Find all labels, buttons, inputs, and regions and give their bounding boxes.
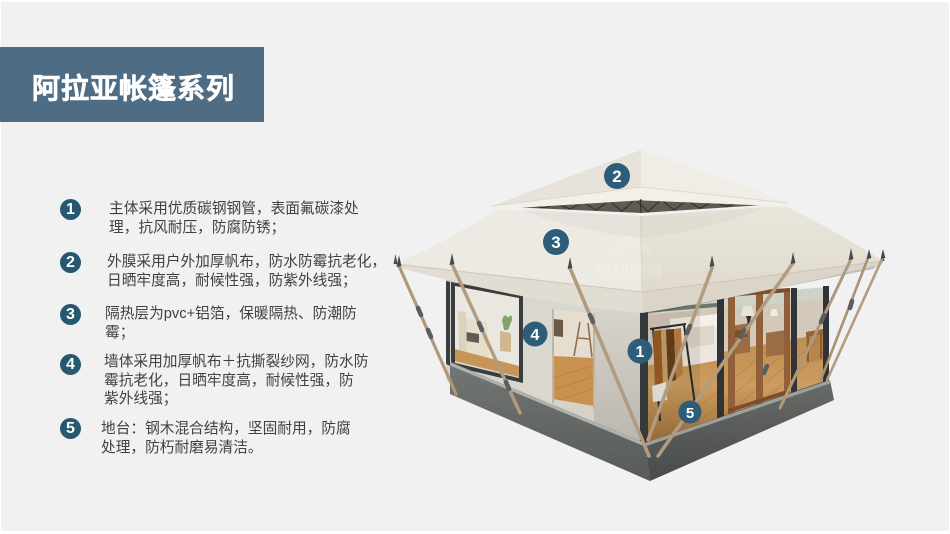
- svg-text:雪利帐房: 雪利帐房: [596, 261, 664, 280]
- svg-text:4: 4: [531, 327, 540, 344]
- svg-text:2: 2: [612, 167, 621, 186]
- svg-text:3: 3: [551, 233, 560, 252]
- svg-text:5: 5: [686, 405, 694, 422]
- svg-text:XUELI TENT: XUELI TENT: [601, 281, 658, 288]
- svg-text:1: 1: [636, 344, 645, 361]
